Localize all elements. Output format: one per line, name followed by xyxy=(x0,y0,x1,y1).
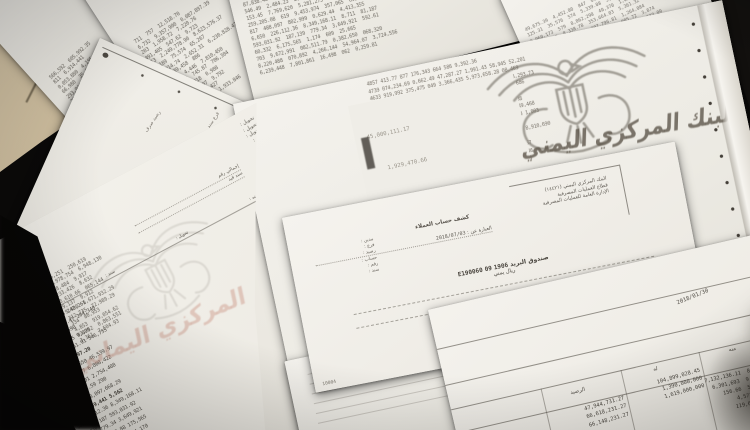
reference-label: العبارة عن : xyxy=(467,225,493,236)
printout-digit-columns: 0,729 279.87 2,156,370 178,581 0,319,539… xyxy=(239,0,400,78)
reference-date: 2018/07/03 xyxy=(436,230,467,242)
column-header-credit: له xyxy=(653,366,659,373)
ink-blot xyxy=(102,52,110,59)
account-extra: 09 xyxy=(484,265,492,273)
handwritten-note: رصيد صرف xyxy=(143,110,162,134)
letter-reference-line: العبارة عن : 2018/07/03 xyxy=(315,225,493,266)
ink-smudge xyxy=(688,320,750,430)
form-number: 10004 xyxy=(322,380,337,388)
balance-amounts: 47,944,731.27 66,618,231.27 66,148,231.2… xyxy=(550,394,630,430)
column-header-balance: الرصيد xyxy=(570,387,586,396)
letter-field-labels: مدين :فرع :رصيد :حساب :رقم :سند : xyxy=(358,237,380,277)
photo-scene: 566,592 605,992.35811 6,914,4410,053,880… xyxy=(0,0,750,430)
letter-title: كشف حساب العملاء xyxy=(415,214,470,230)
